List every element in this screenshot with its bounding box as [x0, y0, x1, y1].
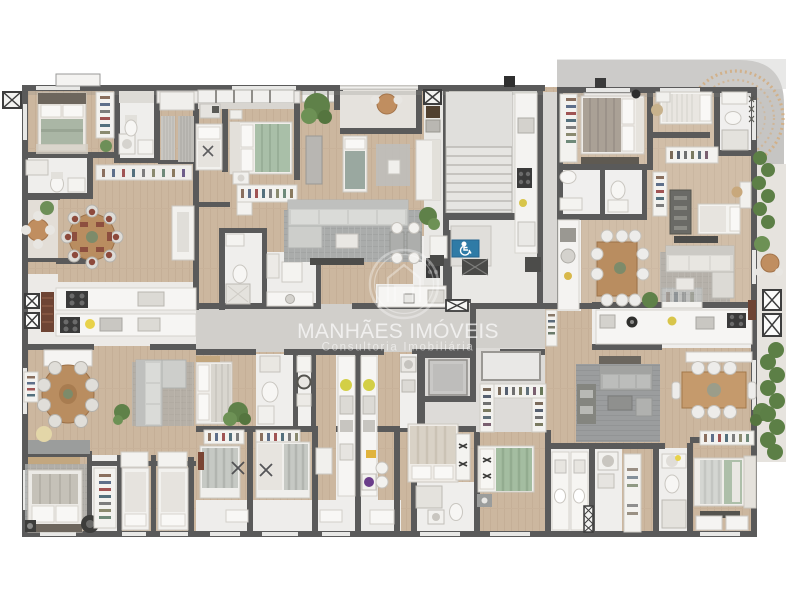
svg-text:Consultoria Imobiliária: Consultoria Imobiliária: [322, 342, 475, 354]
svg-text:MANHÃES IMÓVEIS: MANHÃES IMÓVEIS: [297, 319, 499, 343]
